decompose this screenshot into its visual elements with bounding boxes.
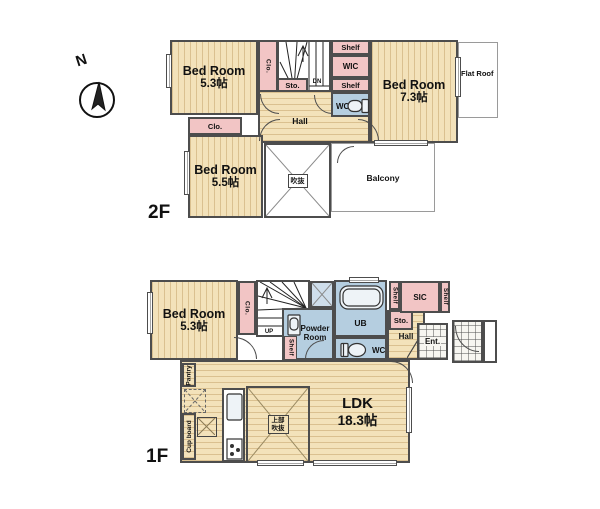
storage-1f-label: Sto. (394, 316, 408, 325)
bathroom-ub: UB (334, 280, 387, 337)
storage-1f: Sto. (389, 310, 413, 330)
stairs-1f-direction: UP (258, 329, 280, 339)
stairs-2f-direction: DN (305, 79, 329, 91)
storage-2f-label: Sto. (285, 81, 299, 90)
void-2f: 吹抜 (264, 143, 331, 218)
window-symbol (349, 277, 379, 283)
shelf-powder: Shelf (284, 336, 297, 360)
flat-roof: Flat Roof (458, 42, 498, 118)
washer-space (310, 281, 334, 308)
bedroom-2f-5-5-label: Bed Room 5.5帖 (194, 163, 257, 190)
shelf-sic-left-label: Shelf (392, 287, 398, 304)
shelf-sic-right-label: Shelf (442, 288, 448, 305)
closet-1f-label: Clo. (244, 301, 251, 315)
sic-label: SIC (413, 293, 426, 302)
shelf-2f-mid: Shelf (331, 78, 370, 92)
kitchen-counter (222, 388, 245, 462)
closet-2f-b-label: Clo. (208, 122, 222, 131)
cupboard: Cup board (182, 413, 196, 460)
floorplan-canvas: N 2F Flat Roof Hall Bed Room 5.3帖 Clo. (0, 0, 600, 509)
ldk-label: LDK 18.3帖 (310, 392, 405, 432)
balcony-label: Balcony (366, 173, 399, 183)
cupboard-counter (197, 417, 217, 437)
door-arc (234, 337, 257, 359)
closet-2f-stairs-label: Clo. (265, 59, 272, 73)
toilet-icon (347, 98, 370, 114)
upper-void: 上部 吹抜 (246, 386, 310, 463)
closet-2f-b: Clo. (188, 117, 242, 135)
bedroom-1f-5-3-label: Bed Room 5.3帖 (163, 307, 226, 334)
shelf-2f-top-label: Shelf (341, 43, 359, 52)
entrance-label: Ent. (424, 337, 441, 346)
wic-2f-label: WIC (343, 62, 359, 71)
stove-icon (226, 438, 243, 460)
kitchen-sink-icon (226, 393, 243, 421)
closet-1f: Clo. (238, 281, 256, 335)
bedroom-2f-7-3: Bed Room 7.3帖 (370, 40, 458, 143)
wic-2f: WIC (331, 55, 370, 78)
porch-step (483, 320, 497, 363)
powder-room-label: Powder Room (301, 325, 330, 343)
window-symbol (455, 57, 461, 97)
void-2f-label: 吹抜 (288, 174, 308, 188)
sic: SIC (400, 281, 440, 313)
window-symbol (257, 460, 304, 466)
compass: N (68, 50, 130, 120)
bedroom-2f-5-3-label: Bed Room 5.3帖 (183, 64, 246, 91)
window-symbol (147, 292, 153, 334)
hall-2f-label: Hall (232, 116, 368, 126)
window-symbol (313, 460, 397, 466)
storage-2f: Sto. (277, 78, 308, 92)
cupboard-label: Cup board (186, 420, 193, 453)
ldk-label-text: LDK 18.3帖 (338, 396, 378, 428)
window-symbol (374, 140, 428, 146)
shelf-2f-mid-label: Shelf (341, 81, 359, 90)
sink-icon (287, 314, 301, 336)
cupboard-cross-lines (198, 418, 215, 435)
pantry-label: Pantry (186, 365, 193, 385)
wc-2f: WC (331, 92, 370, 117)
bathroom-ub-label: UB (336, 318, 385, 328)
shelf-2f-top: Shelf (331, 40, 370, 55)
bedroom-2f-5-5: Bed Room 5.5帖 (188, 135, 263, 218)
wc-1f: WC (334, 337, 387, 360)
bathtub-icon (339, 285, 384, 310)
window-symbol (406, 387, 412, 433)
entrance: Ent. (417, 323, 448, 360)
bedroom-2f-7-3-label: Bed Room 7.3帖 (383, 78, 446, 105)
shelf-powder-label: Shelf (288, 339, 294, 356)
window-symbol (184, 151, 190, 195)
refrigerator-cross-lines (185, 390, 205, 412)
closet-2f-stairs: Clo. (258, 40, 278, 92)
floor-1f-label: 1F (146, 446, 168, 468)
upper-void-label: 上部 吹抜 (268, 415, 289, 434)
window-symbol (166, 54, 172, 88)
pantry: Pantry (182, 363, 196, 387)
bedroom-2f-5-3: Bed Room 5.3帖 (170, 40, 258, 115)
flat-roof-label: Flat Roof (461, 69, 497, 78)
toilet-icon (340, 342, 368, 358)
bedroom-1f-5-3: Bed Room 5.3帖 (150, 280, 238, 360)
floor-2f-label: 2F (148, 202, 170, 224)
shelf-sic-left: Shelf (389, 281, 400, 310)
shelf-sic-right: Shelf (440, 281, 450, 313)
wc-1f-label: WC (372, 346, 385, 355)
compass-icon (68, 62, 130, 120)
refrigerator-space (184, 389, 206, 413)
washer-cross-lines (312, 283, 332, 306)
